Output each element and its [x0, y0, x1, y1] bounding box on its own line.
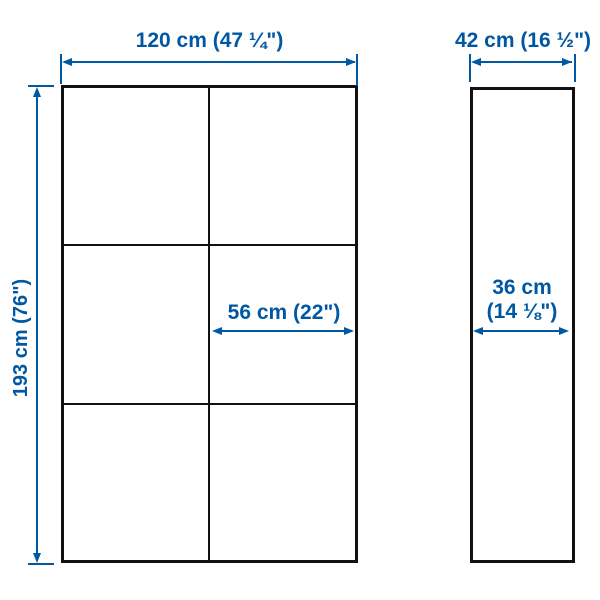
height-tick-bottom	[28, 563, 54, 565]
arrowhead-right-icon	[346, 58, 356, 66]
front-view-vertical-divider	[208, 88, 210, 560]
arrowhead-left-icon	[62, 58, 72, 66]
front-view-horizontal-divider-2	[64, 403, 355, 405]
width-dimension-line	[64, 61, 355, 63]
height-dimension-line	[36, 92, 38, 554]
side-view-outline	[470, 87, 575, 563]
arrowhead-down-icon	[33, 553, 41, 563]
arrowhead-left-icon	[212, 327, 222, 335]
depth-dimension-line	[473, 61, 572, 63]
arrowhead-left-icon	[471, 58, 481, 66]
inner-depth-line1: 36 cm	[492, 276, 552, 299]
inner-depth-dimension-label: 36 cm (14 ⅛")	[447, 276, 597, 324]
inner-depth-line2: (14 ⅛")	[487, 300, 558, 323]
arrowhead-right-icon	[344, 327, 354, 335]
width-dimension-label: 120 cm (47 ¼")	[61, 28, 358, 53]
arrowhead-right-icon	[562, 58, 572, 66]
inner-width-dimension-line	[216, 330, 352, 332]
arrowhead-up-icon	[33, 87, 41, 97]
front-view-horizontal-divider-1	[64, 244, 355, 246]
arrowhead-left-icon	[473, 327, 483, 335]
height-tick-top	[28, 85, 54, 87]
product-dimension-diagram: 120 cm (47 ¼") 42 cm (16 ½") 193 cm (76"…	[0, 0, 600, 600]
inner-width-dimension-label: 56 cm (22")	[212, 302, 356, 324]
depth-extension-line-right	[574, 54, 576, 82]
width-extension-line-right	[356, 54, 358, 86]
height-dimension-label: 193 cm (76")	[6, 228, 36, 448]
inner-depth-dimension-line	[477, 330, 567, 332]
depth-dimension-label: 42 cm (16 ½")	[448, 28, 598, 53]
arrowhead-right-icon	[559, 327, 569, 335]
